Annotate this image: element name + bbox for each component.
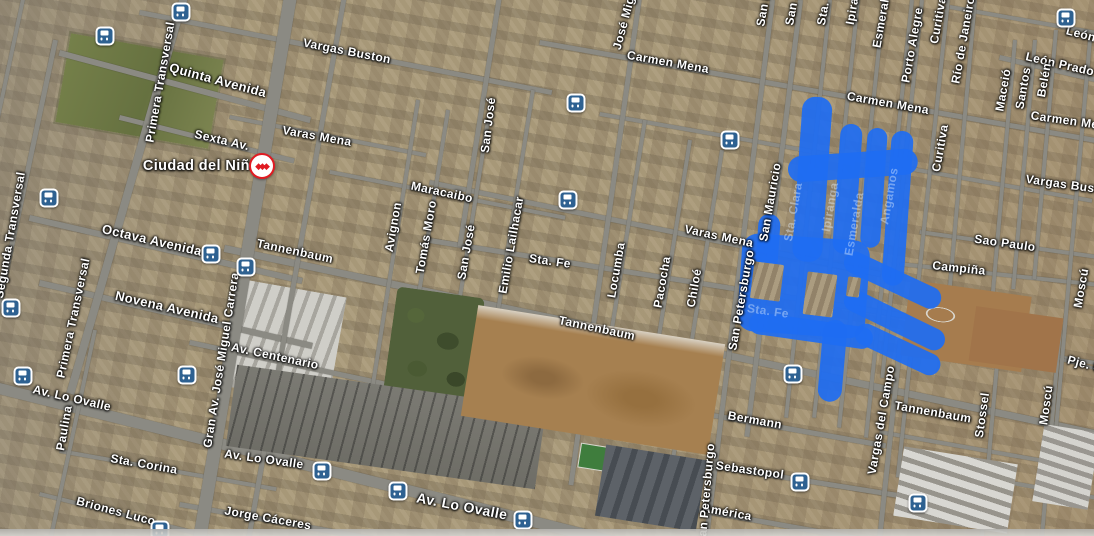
bus-stop-icon[interactable] bbox=[313, 462, 332, 481]
bus-stop-icon[interactable] bbox=[567, 94, 586, 113]
street-label: Sao Paulo bbox=[974, 232, 1037, 254]
street-label: Bermann bbox=[727, 408, 783, 431]
street-label: Pacocha bbox=[651, 255, 674, 309]
street-label: Sta. Fe bbox=[528, 251, 572, 271]
road bbox=[457, 0, 503, 247]
street-label: Carmen Mena bbox=[846, 89, 930, 117]
map-edge-strip bbox=[0, 529, 1094, 536]
bus-stop-icon[interactable] bbox=[96, 27, 115, 46]
street-label: Campiña bbox=[932, 258, 987, 278]
street-label: Moscú bbox=[1071, 267, 1092, 309]
street-label: Sexta Av. bbox=[193, 127, 251, 153]
overlay-hole bbox=[846, 276, 861, 297]
street-label: Sebastopol bbox=[715, 458, 785, 481]
street-label: Pje. U bbox=[1066, 353, 1094, 376]
bus-stop-icon[interactable] bbox=[40, 189, 59, 208]
bus-stop-icon[interactable] bbox=[559, 191, 578, 210]
street-label: Esmeralda bbox=[870, 0, 895, 49]
street-label: Porto Alegre bbox=[898, 6, 925, 84]
bus-stop-icon[interactable] bbox=[178, 366, 197, 385]
street-label: Avignon bbox=[382, 201, 405, 253]
street-label: Vargas Buston bbox=[302, 36, 392, 67]
bus-stop-icon[interactable] bbox=[172, 3, 191, 22]
street-label: Ipiranga bbox=[843, 0, 865, 26]
bus-stop-icon[interactable] bbox=[1057, 9, 1076, 28]
street-label: Carmen Mena bbox=[626, 48, 710, 76]
bus-stop-icon[interactable] bbox=[784, 365, 803, 384]
satellite-map[interactable]: Sta. ClaraIpirangaEsmeraldaAngamosSta. F… bbox=[0, 0, 1094, 536]
bus-stop-icon[interactable] bbox=[389, 482, 408, 501]
bus-stop-icon[interactable] bbox=[791, 473, 810, 492]
dark-buildings bbox=[595, 444, 707, 531]
bus-stop-icon[interactable] bbox=[721, 131, 740, 150]
bus-stop-icon[interactable] bbox=[2, 299, 21, 318]
warehouse-rows-2 bbox=[1032, 424, 1094, 510]
street-label: San José bbox=[454, 223, 477, 280]
bus-stop-icon[interactable] bbox=[14, 367, 33, 386]
street-label: Av. Lo Ovalle bbox=[415, 489, 509, 522]
bus-stop-icon[interactable] bbox=[237, 258, 256, 277]
street-label: Segunda Transversal bbox=[0, 171, 28, 300]
bus-stop-icon[interactable] bbox=[202, 245, 221, 264]
street-label: Emilio Lailhacar bbox=[496, 195, 527, 294]
locality-label: Ciudad del Niño bbox=[143, 158, 259, 174]
bus-stop-icon[interactable] bbox=[909, 494, 928, 513]
street-label: San Mauricio bbox=[782, 0, 810, 26]
overlay-hole bbox=[802, 271, 837, 317]
street-label: Sta. Corina bbox=[109, 451, 178, 477]
street-label: Briones Luco bbox=[75, 494, 157, 529]
warehouse-rows bbox=[893, 446, 1018, 533]
bus-stop-icon[interactable] bbox=[514, 511, 533, 530]
street-label: León Prado bbox=[1024, 49, 1094, 78]
overlay-hole bbox=[750, 261, 784, 301]
street-label: Sta. Clara bbox=[814, 0, 838, 26]
metro-station-icon[interactable]: ◆◆◆ bbox=[249, 153, 275, 179]
street-label: Tomás Moro bbox=[413, 199, 440, 275]
